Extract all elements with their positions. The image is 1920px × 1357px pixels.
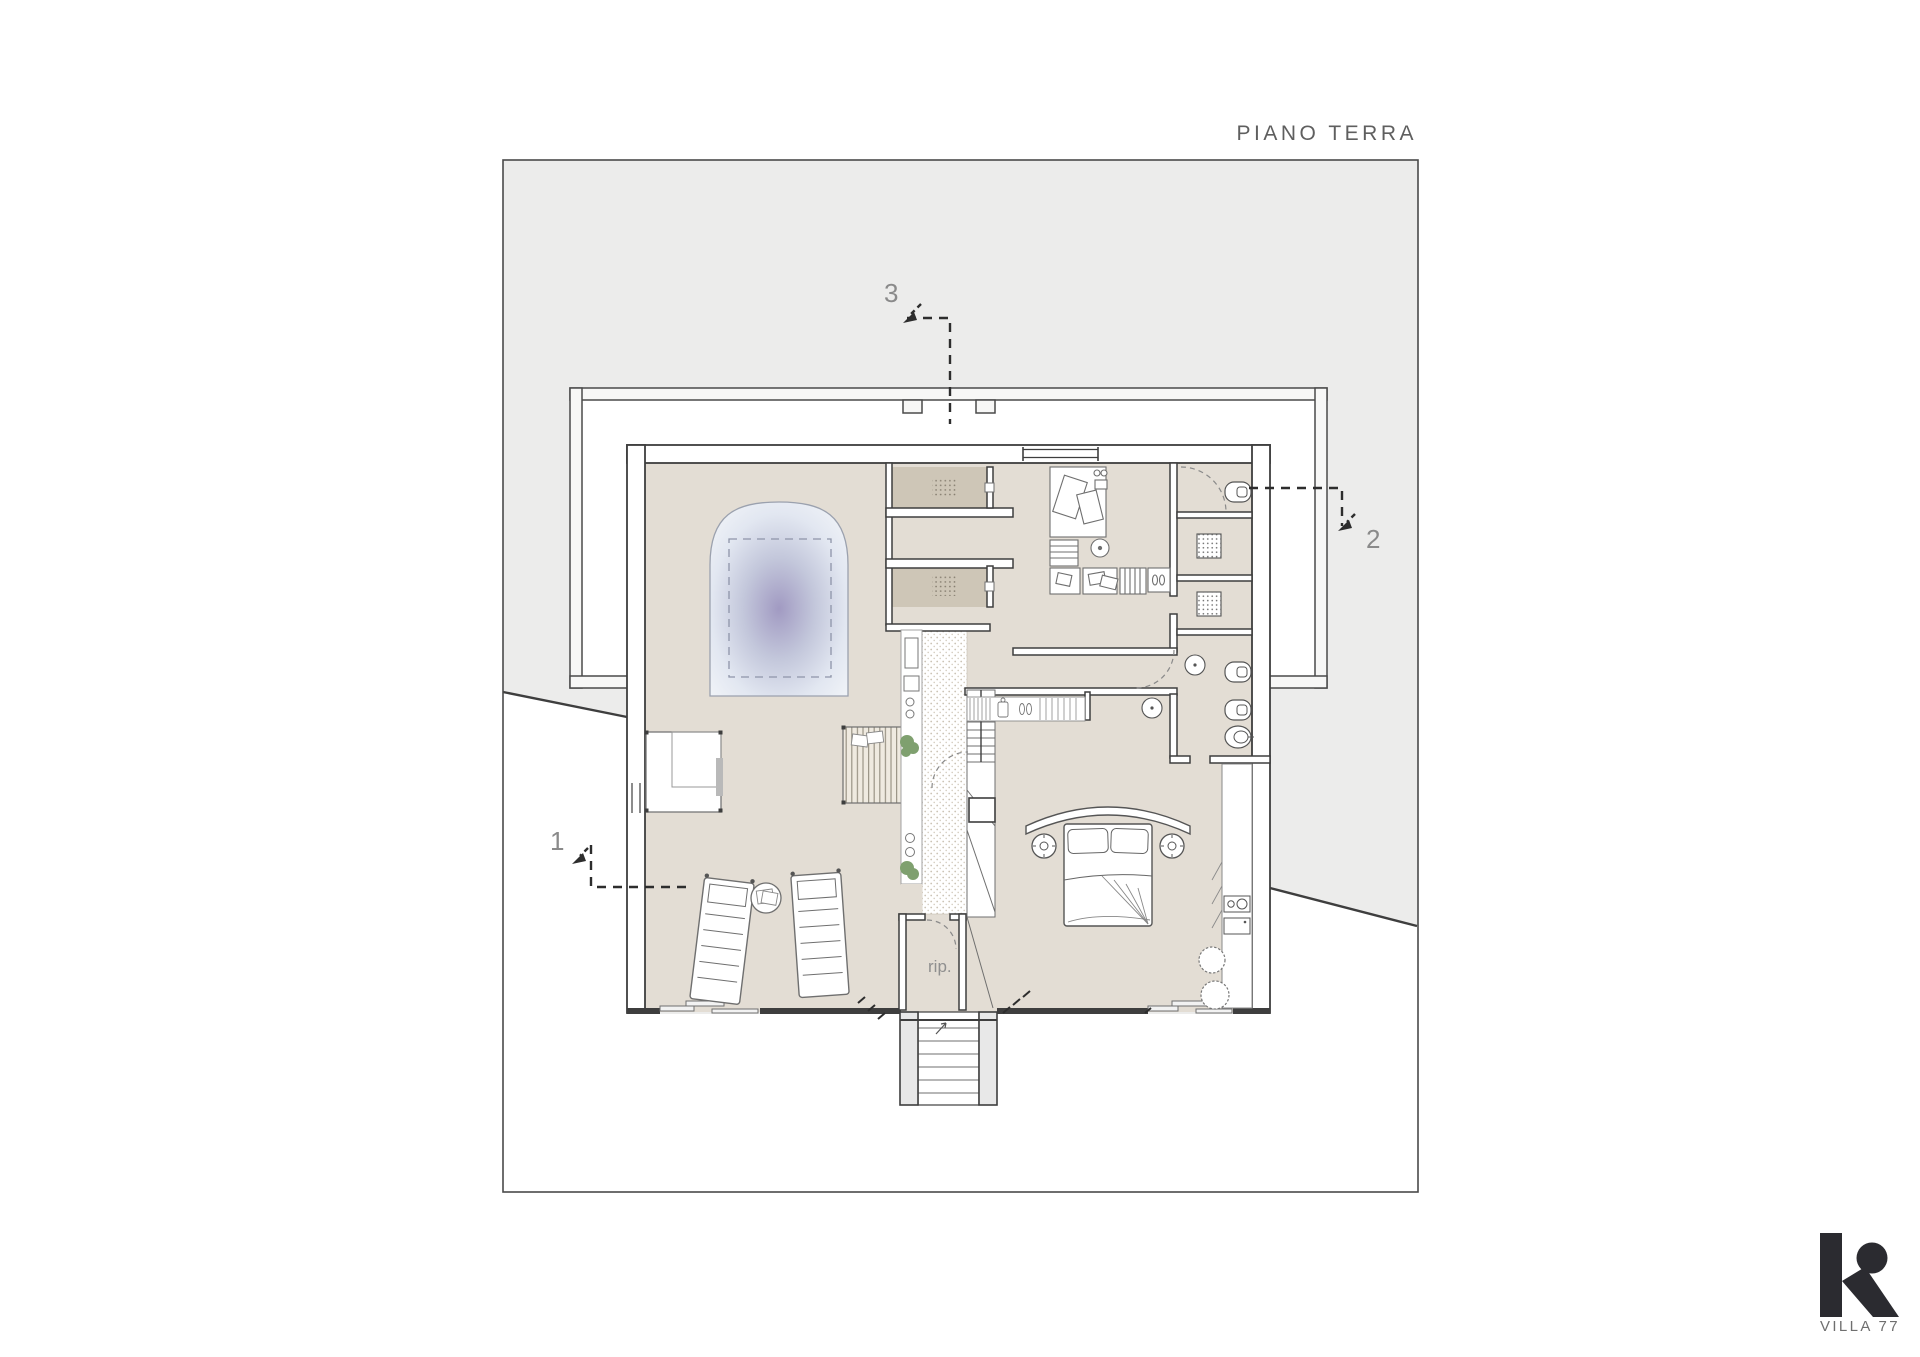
kitchen-corridor-floor [922,630,967,914]
logo-k-icon [1820,1233,1899,1317]
toilet-1 [1225,482,1251,502]
storage-label: rip. [928,957,952,976]
brand-logo: VILLA 77 [1820,1233,1900,1335]
vaulted-pool [710,502,848,696]
logo-name: VILLA 77 [1820,1318,1900,1335]
shower-2 [1197,592,1221,616]
drying-rack [1120,568,1146,594]
laundry-shelves [1050,540,1078,566]
page-title: PIANO TERRA [1237,122,1417,145]
closet-1-door-knob [985,483,994,492]
sofa-square [645,731,724,813]
gate-pilaster-right [976,400,995,413]
section-label-1: 1 [550,826,564,856]
toilet-3 [1225,700,1251,720]
closet-2-door-knob [985,582,994,591]
pillow-left [1068,828,1109,853]
floor-plan-page: 3 2 1 rip. PIANO TERRA VILLA 77 [0,0,1920,1357]
gate-pilaster-left [903,400,922,413]
basin-1 [1185,655,1205,675]
closet-2-rug [932,576,958,596]
section-label-2: 2 [1366,524,1380,554]
window-left [628,783,644,813]
shoe-cabinet [1148,568,1170,592]
lounge-chair-2 [790,868,849,997]
section-label-3: 3 [884,278,898,308]
kitchen-counter [900,630,922,912]
wicker-stool-1 [1199,947,1225,973]
basin-2 [1142,698,1162,718]
stair-landing [969,798,995,822]
side-table [751,883,781,913]
window-top [1023,447,1098,462]
closet-1-rug [932,477,958,497]
shower-1 [1197,534,1221,558]
wicker-stool-2 [1201,981,1229,1009]
floor-plan-svg: 3 2 1 rip. PIANO TERRA VILLA 77 [0,0,1920,1357]
toilet-2 [1225,662,1251,682]
kitchenette-oven [1224,918,1250,934]
pillow-right [1111,828,1149,853]
wardrobe [967,697,1085,721]
